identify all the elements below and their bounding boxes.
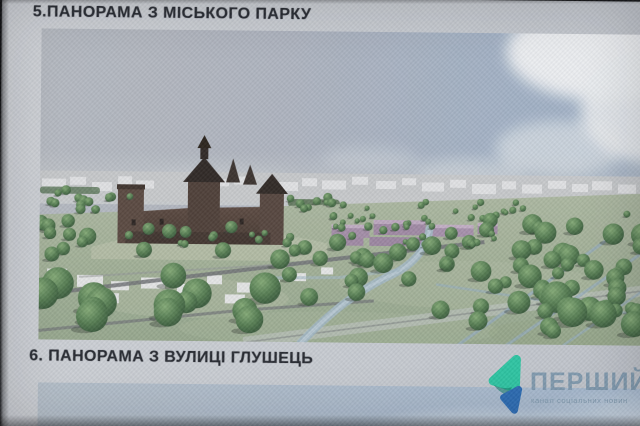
photo-edge-top xyxy=(0,0,640,4)
play-ribbon-icon xyxy=(484,355,530,417)
panorama-scene xyxy=(38,28,640,346)
panorama-render-city-park xyxy=(38,28,640,346)
photo-edge-left xyxy=(0,0,10,426)
section-title-5: 5.ПАНОРАМА З МІСЬКОГО ПАРКУ xyxy=(33,3,312,24)
logo-brand-text: ПЕРШИЙ xyxy=(530,368,640,397)
watermark-logo: ПЕРШИЙ канал соціальних новин xyxy=(484,353,640,419)
photo-frame: 5.ПАНОРАМА З МІСЬКОГО ПАРКУ xyxy=(0,0,640,426)
logo-tagline: канал соціальних новин xyxy=(531,396,628,405)
photo-edge-bottom xyxy=(0,414,640,426)
section-title-6: 6. ПАНОРАМА З ВУЛИЦІ ГЛУШЕЦЬ xyxy=(29,347,313,368)
